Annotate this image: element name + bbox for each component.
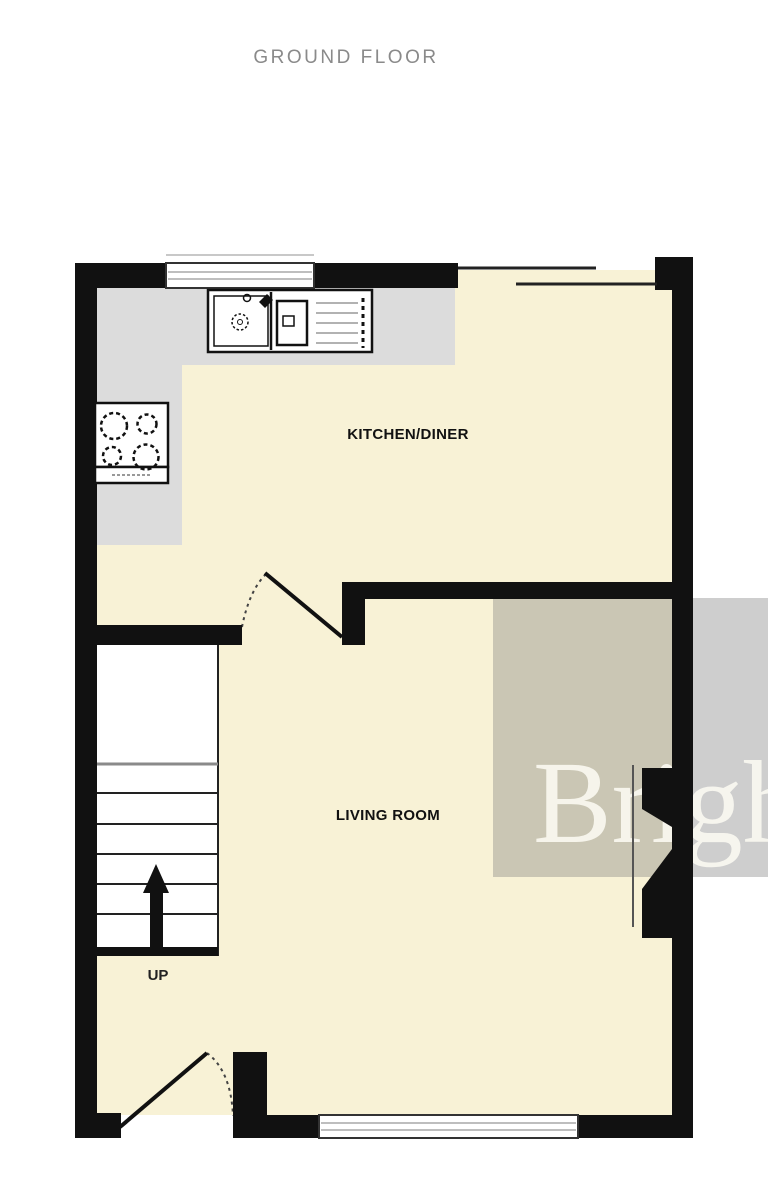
- floor-plan-page: GROUND FLOOR Bright: [0, 0, 768, 1200]
- stairs-up-label: UP: [128, 967, 188, 984]
- hob-icon: [95, 403, 168, 483]
- floor-plan: Bright: [0, 0, 768, 1200]
- wall-door-stub: [233, 1052, 267, 1138]
- wall-top-a: [75, 263, 166, 288]
- wall-internal-stub: [342, 582, 365, 645]
- stairs: [97, 645, 218, 956]
- wall-internal-right: [342, 582, 672, 599]
- sink-icon: [208, 290, 372, 352]
- wall-bottom-a: [267, 1115, 319, 1138]
- room-label-living-room: LIVING ROOM: [288, 807, 488, 824]
- watermark: Bright: [493, 598, 768, 877]
- wall-top-b: [314, 263, 458, 288]
- room-label-kitchen-diner: KITCHEN/DINER: [308, 426, 508, 443]
- wall-right: [672, 263, 693, 1138]
- wall-bottom-right-corner: [578, 1115, 693, 1138]
- wall-left: [75, 263, 97, 1138]
- wall-internal-left: [97, 625, 242, 645]
- window-top: [166, 255, 314, 288]
- wall-bottom-left-corner: [75, 1113, 121, 1138]
- window-bottom: [319, 1115, 578, 1138]
- wall-top-right-corner: [655, 257, 693, 290]
